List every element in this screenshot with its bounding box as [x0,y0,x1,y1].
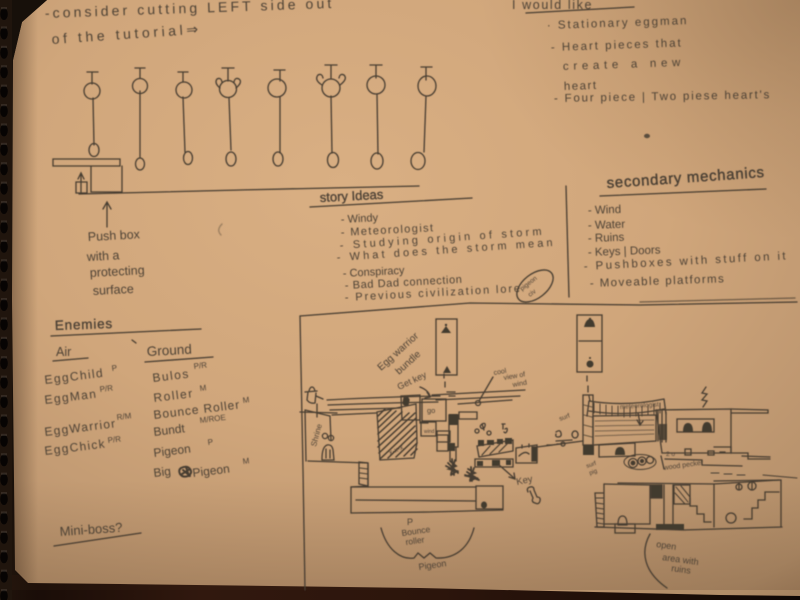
svg-text:wind: wind [424,429,435,435]
svg-text:P/R: P/R [99,383,114,394]
svg-text:- Ruins: - Ruins [588,232,625,245]
svg-text:P: P [207,437,213,447]
svg-text:Ground: Ground [146,342,192,359]
svg-text:- Wind: - Wind [588,204,622,217]
svg-text:surface: surface [92,282,134,298]
svg-text:protecting: protecting [89,263,145,280]
svg-text:Push box: Push box [87,227,141,244]
svg-text:- Windy: - Windy [341,212,379,226]
svg-text:P/R: P/R [107,434,122,445]
svg-text:P: P [111,363,117,373]
svg-text:2 o: 2 o [666,451,675,458]
svg-text:heart: heart [564,80,598,93]
svg-text:P: P [407,517,413,527]
svg-text:Enemies: Enemies [55,316,114,333]
svg-text:Air: Air [56,345,71,359]
svg-text:P/R: P/R [193,360,208,371]
svg-text:- Water: - Water [588,219,626,232]
svg-text:go: go [427,406,435,415]
svg-text:R/M: R/M [116,411,132,422]
svg-text:with a: with a [85,248,119,264]
svg-text:Big: Big [153,464,172,480]
